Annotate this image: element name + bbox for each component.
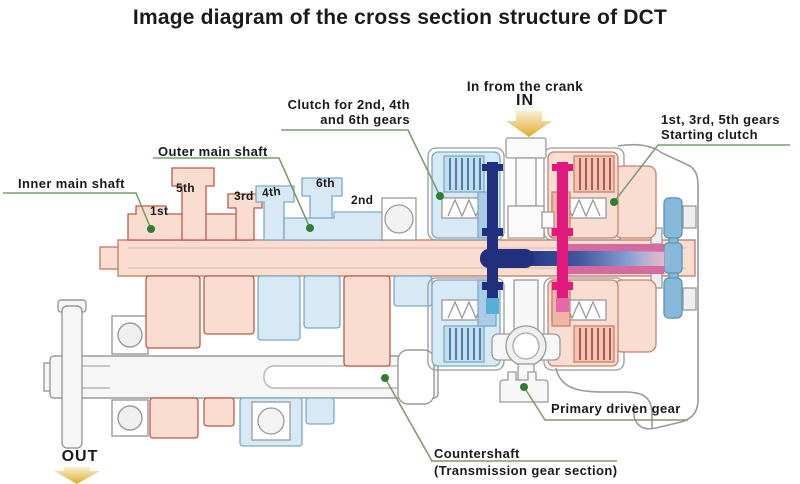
label-gear-5th: 5th <box>176 181 195 195</box>
label-out: OUT <box>48 449 112 464</box>
input-column-drawing <box>506 138 554 238</box>
label-gear-4th: 4th <box>261 184 281 200</box>
label-countershaft-line2: (Transmission gear section) <box>434 462 617 479</box>
label-gears-1-3-5-line1: 1st, 3rd, 5th gears <box>661 113 780 128</box>
label-gear-2nd: 2nd <box>351 193 373 207</box>
countershaft-gears-drawing <box>150 398 334 446</box>
label-primary-driven-gear: Primary driven gear <box>551 401 681 416</box>
label-outer-main-shaft: Outer main shaft <box>158 144 268 159</box>
in-arrow-icon <box>506 111 552 137</box>
label-clutch-2-4-6-line2: and 6th gears <box>258 113 410 128</box>
label-gears-1-3-5-line2: Starting clutch <box>661 128 780 143</box>
label-countershaft: Countershaft (Transmission gear section) <box>434 445 617 479</box>
label-clutch-2-4-6-line1: Clutch for 2nd, 4th <box>258 98 410 113</box>
out-arrow-icon <box>54 467 100 484</box>
main-shaft-gears-bottom-drawing <box>146 276 432 366</box>
page-title: Image diagram of the cross section struc… <box>0 6 800 30</box>
label-gears-1-3-5: 1st, 3rd, 5th gears Starting clutch <box>661 113 780 142</box>
dct-diagram-figure: Image diagram of the cross section struc… <box>0 0 800 484</box>
label-countershaft-line1: Countershaft <box>434 445 617 462</box>
label-inner-main-shaft: Inner main shaft <box>18 176 125 191</box>
label-in: IN <box>480 93 570 108</box>
label-gear-1st: 1st <box>150 204 168 218</box>
label-clutch-2-4-6: Clutch for 2nd, 4th and 6th gears <box>258 98 410 127</box>
label-gear-3rd: 3rd <box>234 189 254 203</box>
label-gear-6th: 6th <box>316 176 335 190</box>
